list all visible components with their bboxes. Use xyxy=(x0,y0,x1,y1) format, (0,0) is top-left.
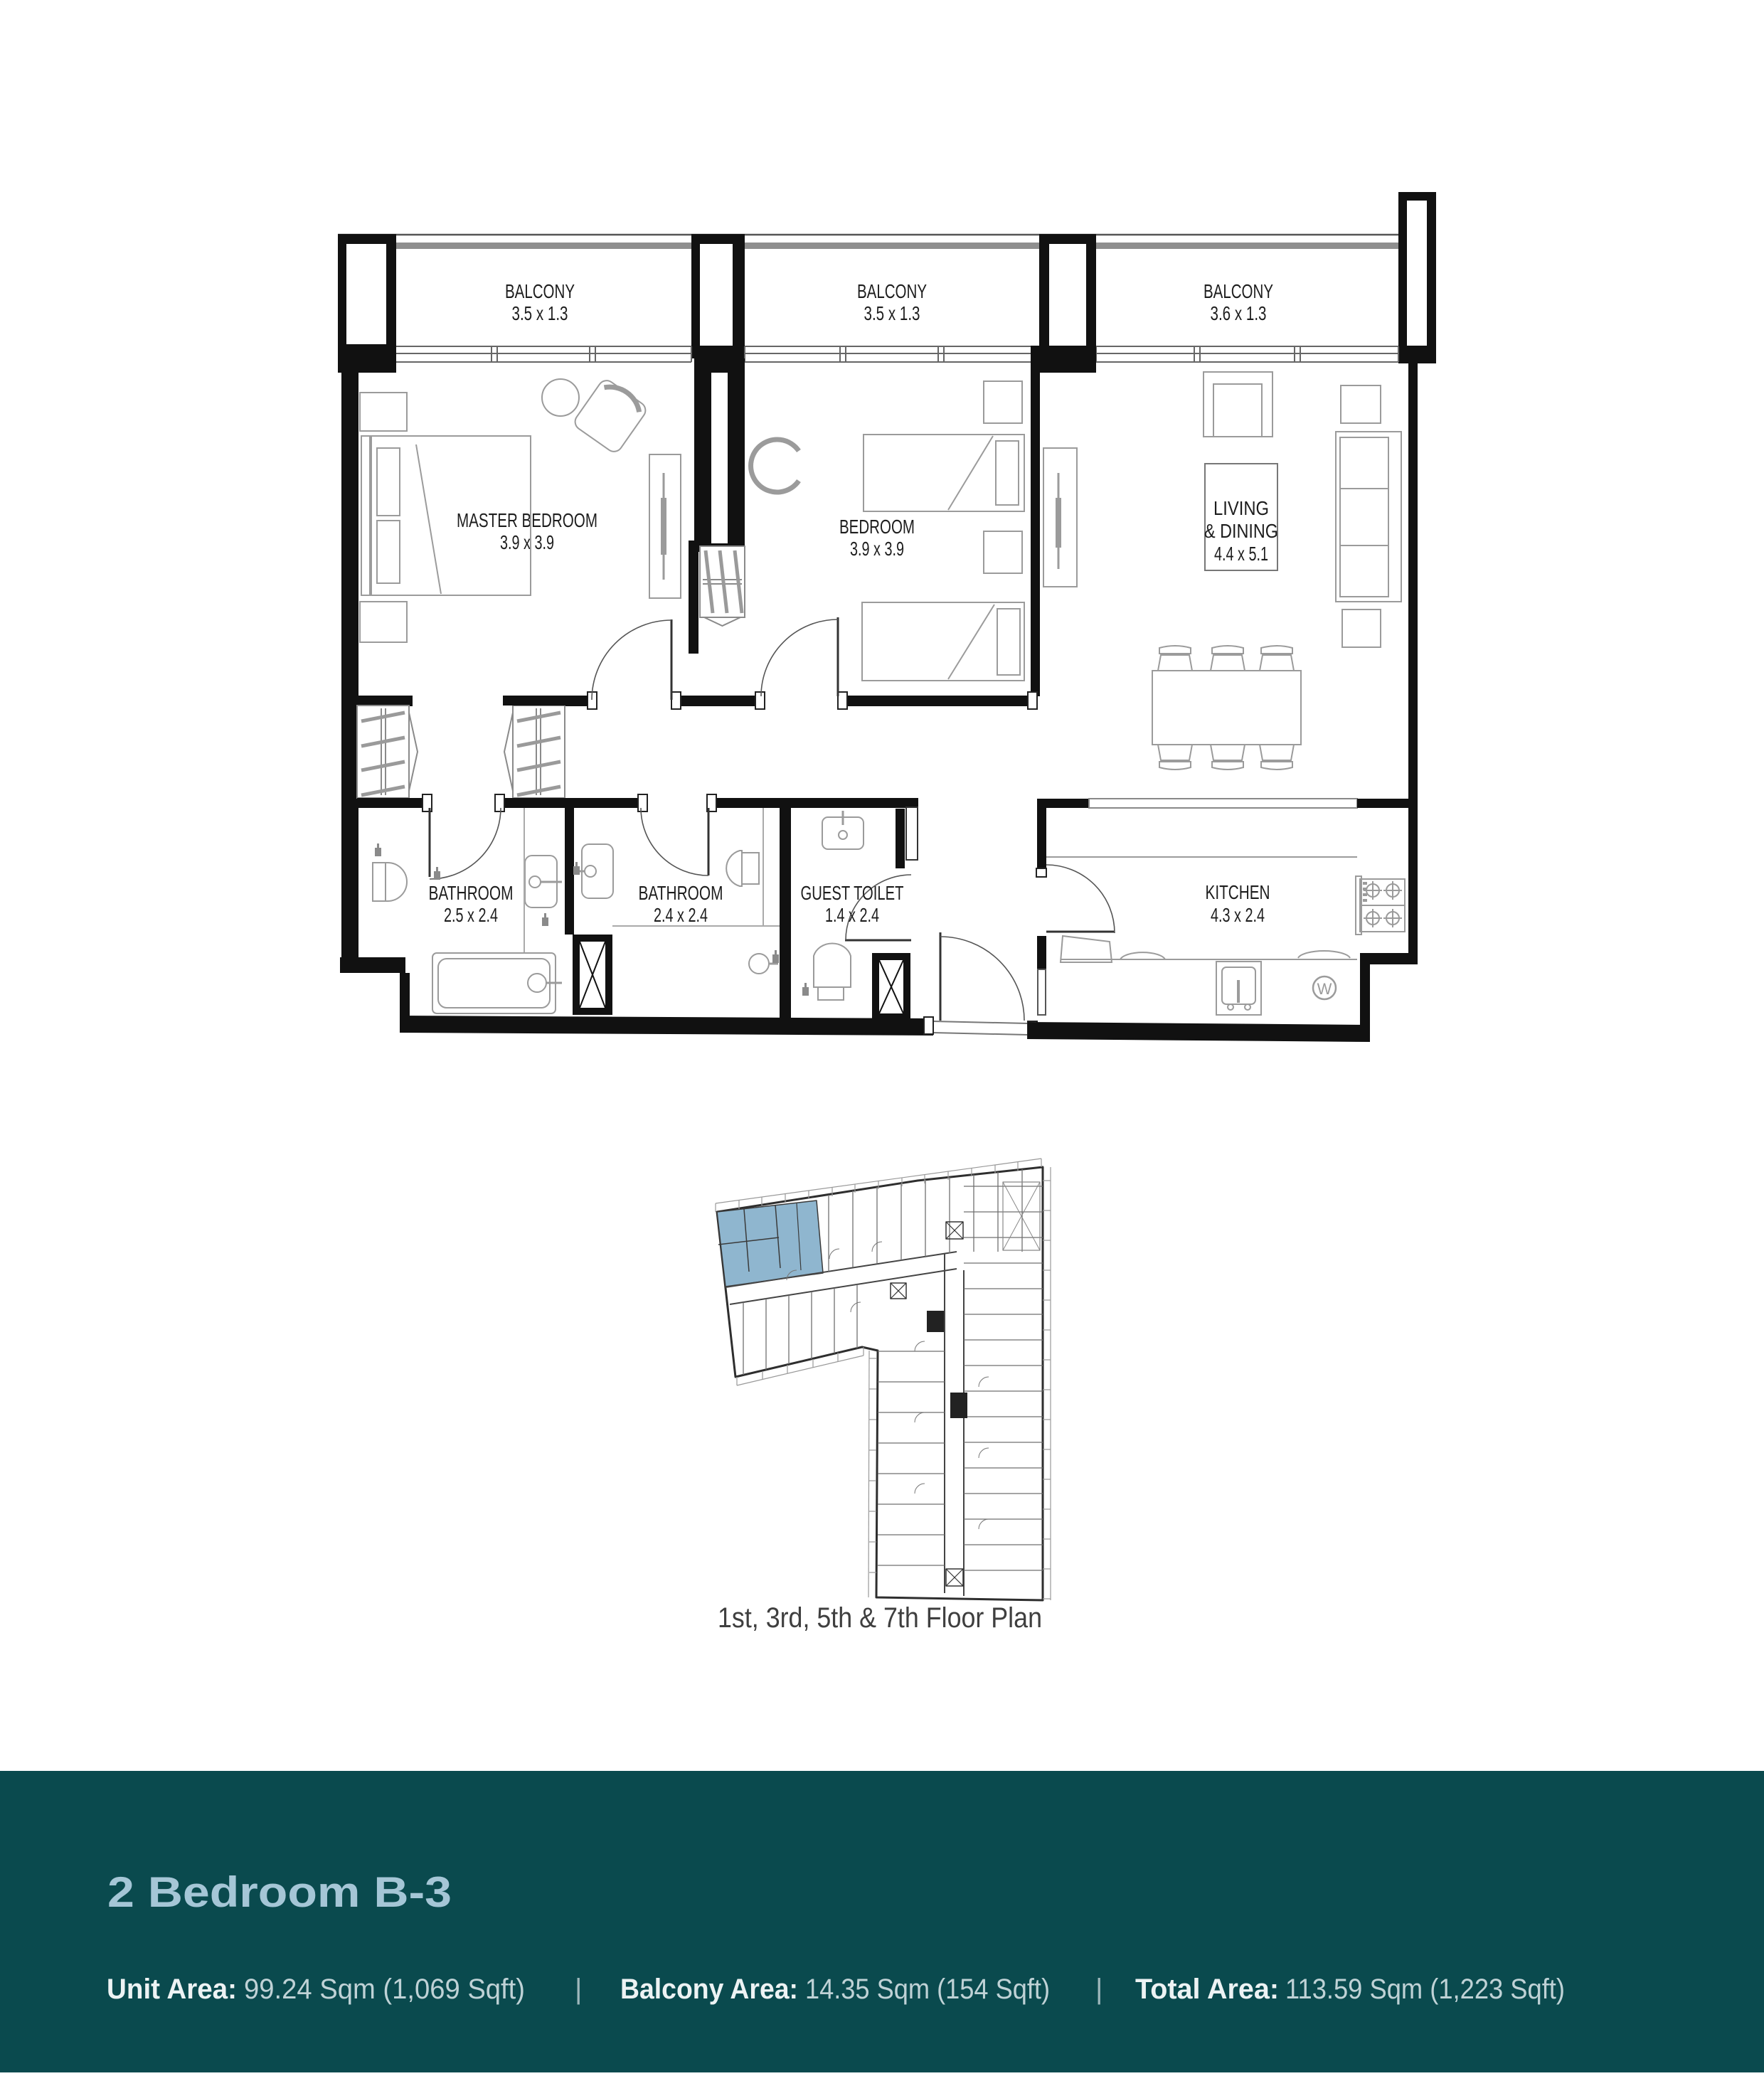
svg-text:99.24 Sqm (1,069 Sqft): 99.24 Sqm (1,069 Sqft) xyxy=(244,1974,525,2005)
svg-text:113.59 Sqm (1,223 Sqft): 113.59 Sqm (1,223 Sqft) xyxy=(1285,1974,1565,2005)
svg-text:2.4 x 2.4: 2.4 x 2.4 xyxy=(654,904,708,926)
svg-text:2.5 x 2.4: 2.5 x 2.4 xyxy=(444,904,498,926)
svg-text:3.5 x 1.3: 3.5 x 1.3 xyxy=(864,302,920,324)
svg-text:3.9 x 3.9: 3.9 x 3.9 xyxy=(850,538,904,560)
svg-text:1.4 x 2.4: 1.4 x 2.4 xyxy=(825,904,879,926)
svg-text:& DINING: & DINING xyxy=(1204,520,1278,542)
svg-text:MASTER BEDROOM: MASTER BEDROOM xyxy=(457,509,597,531)
svg-text:BATHROOM: BATHROOM xyxy=(639,882,723,904)
svg-text:14.35 Sqm (154 Sqft): 14.35 Sqm (154 Sqft) xyxy=(805,1974,1050,2005)
svg-text:4.3 x 2.4: 4.3 x 2.4 xyxy=(1211,904,1265,926)
svg-text:LIVING: LIVING xyxy=(1213,497,1269,519)
svg-text:Unit Area:: Unit Area: xyxy=(107,1974,237,2005)
svg-text:BALCONY: BALCONY xyxy=(1204,280,1273,302)
svg-text:Balcony Area:: Balcony Area: xyxy=(620,1974,798,2005)
svg-text:GUEST TOILET: GUEST TOILET xyxy=(801,882,904,904)
svg-text:BALCONY: BALCONY xyxy=(505,280,575,302)
svg-text:BALCONY: BALCONY xyxy=(857,280,927,302)
svg-text:|: | xyxy=(1095,1974,1102,2005)
svg-text:1st, 3rd, 5th & 7th Floor Plan: 1st, 3rd, 5th & 7th Floor Plan xyxy=(718,1602,1042,1634)
svg-text:2 Bedroom B-3: 2 Bedroom B-3 xyxy=(107,1868,452,1916)
svg-text:|: | xyxy=(575,1974,582,2005)
svg-text:4.4 x 5.1: 4.4 x 5.1 xyxy=(1214,543,1268,565)
svg-text:KITCHEN: KITCHEN xyxy=(1206,881,1270,903)
svg-text:BATHROOM: BATHROOM xyxy=(429,882,514,904)
svg-text:3.5 x 1.3: 3.5 x 1.3 xyxy=(512,302,568,324)
svg-text:W: W xyxy=(1317,980,1332,998)
svg-text:3.6 x 1.3: 3.6 x 1.3 xyxy=(1211,302,1267,324)
svg-text:Total Area:: Total Area: xyxy=(1135,1974,1279,2005)
svg-text:BEDROOM: BEDROOM xyxy=(839,516,915,538)
svg-text:3.9 x 3.9: 3.9 x 3.9 xyxy=(500,531,554,553)
